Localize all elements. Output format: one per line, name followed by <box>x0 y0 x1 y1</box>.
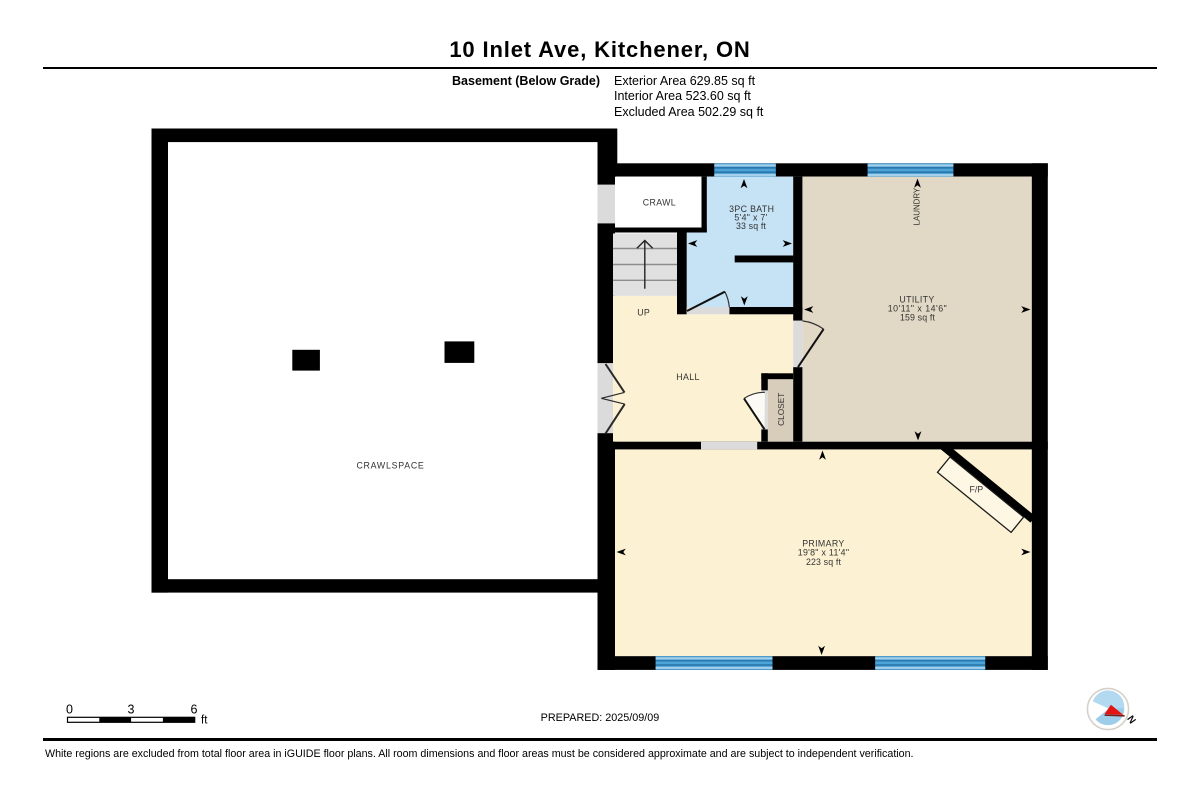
svg-text:3: 3 <box>128 703 135 717</box>
svg-text:33 sq ft: 33 sq ft <box>736 221 766 231</box>
svg-text:UP: UP <box>637 307 650 317</box>
svg-text:CLOSET: CLOSET <box>776 393 786 426</box>
svg-text:159 sq ft: 159 sq ft <box>900 313 936 323</box>
svg-text:223 sq ft: 223 sq ft <box>806 557 842 567</box>
svg-text:LAUNDRY: LAUNDRY <box>913 187 922 225</box>
svg-text:CRAWL: CRAWL <box>643 198 676 208</box>
svg-text:PREPARED: 2025/09/09: PREPARED: 2025/09/09 <box>541 712 660 724</box>
svg-text:6: 6 <box>191 703 198 717</box>
svg-text:F/P: F/P <box>969 485 983 495</box>
svg-text:CRAWLSPACE: CRAWLSPACE <box>356 460 424 470</box>
svg-text:HALL: HALL <box>676 372 699 382</box>
svg-text:ft: ft <box>201 715 208 727</box>
svg-text:0: 0 <box>66 703 73 717</box>
